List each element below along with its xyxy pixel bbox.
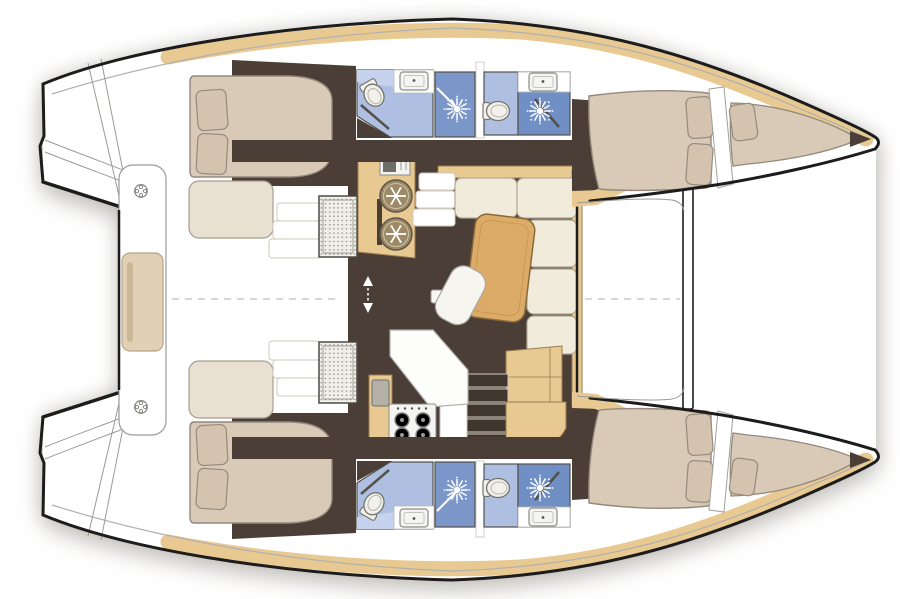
catamaran-floor-plan: [0, 0, 900, 599]
pillow: [729, 103, 759, 142]
hull-passage: [232, 140, 578, 162]
washbasin: [400, 72, 428, 90]
saloon: [348, 140, 582, 459]
washbasin: [529, 73, 557, 91]
galley-sink: [372, 380, 389, 406]
shower-head-icon: [444, 96, 471, 123]
cockpit: [119, 165, 166, 435]
refrigerator-icon: [380, 180, 412, 212]
pillow: [686, 143, 714, 186]
refrigerator-icon: [380, 218, 412, 250]
nav-desk: [506, 346, 562, 402]
stove-4-burner: [389, 404, 436, 442]
hatch-grate: [319, 196, 357, 257]
side-berth: [189, 181, 273, 238]
forward-head: [483, 72, 570, 135]
deck-ring-icon: [135, 401, 148, 414]
sofa-back-shelf: [438, 166, 578, 178]
pillow: [196, 89, 229, 131]
shower-head-icon: [527, 98, 554, 125]
galley-counter-forward: [358, 150, 415, 258]
cushion-seam: [127, 262, 133, 342]
pillow: [196, 133, 228, 175]
aft-head: [357, 70, 475, 138]
forward-crossbeam: [683, 189, 693, 409]
deck-ring-icon: [135, 185, 148, 198]
pillow: [686, 96, 714, 139]
companionway-steps-port: [413, 173, 455, 226]
head-divider-wall: [476, 62, 484, 138]
toilet: [483, 102, 510, 121]
floor-plan-canvas: [0, 0, 900, 599]
access-steps: [269, 203, 320, 258]
